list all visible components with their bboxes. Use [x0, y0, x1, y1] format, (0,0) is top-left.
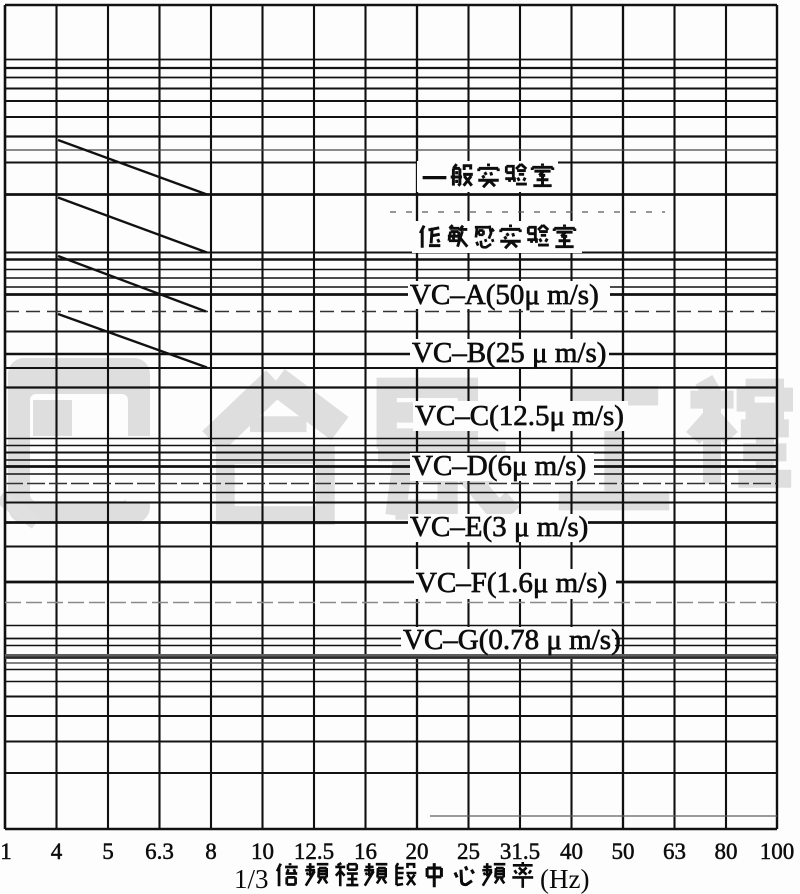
svg-text:50: 50 — [612, 839, 635, 864]
svg-text:VC–D(6μ m/s): VC–D(6μ m/s) — [412, 450, 586, 482]
svg-text:100: 100 — [760, 839, 795, 864]
svg-text:25: 25 — [457, 839, 480, 864]
svg-text:VC–C(12.5μ m/s): VC–C(12.5μ m/s) — [415, 400, 624, 432]
svg-text:VC–F(1.6μ m/s): VC–F(1.6μ m/s) — [416, 567, 607, 599]
svg-text:63: 63 — [663, 839, 686, 864]
svg-text:VC–A(50μ m/s): VC–A(50μ m/s) — [410, 279, 599, 311]
svg-text:4: 4 — [51, 839, 63, 864]
svg-text:VC–B(25 μ m/s): VC–B(25 μ m/s) — [412, 337, 606, 369]
svg-text:VC–E(3 μ m/s): VC–E(3 μ m/s) — [410, 511, 588, 543]
svg-text:80: 80 — [715, 839, 738, 864]
svg-text:1/3: 1/3 — [234, 864, 269, 894]
svg-text:VC–G(0.78 μ m/s): VC–G(0.78 μ m/s) — [403, 624, 621, 656]
svg-text:6.3: 6.3 — [145, 839, 174, 864]
svg-text:5: 5 — [102, 839, 114, 864]
svg-text:1: 1 — [0, 839, 12, 864]
svg-text:20: 20 — [406, 839, 429, 864]
svg-text:12.5: 12.5 — [294, 839, 334, 864]
svg-text:10: 10 — [251, 839, 274, 864]
svg-text:(Hz): (Hz) — [540, 864, 589, 894]
svg-text:40: 40 — [560, 839, 583, 864]
svg-text:8: 8 — [205, 839, 217, 864]
svg-text:16: 16 — [354, 839, 377, 864]
svg-text:31.5: 31.5 — [500, 839, 540, 864]
